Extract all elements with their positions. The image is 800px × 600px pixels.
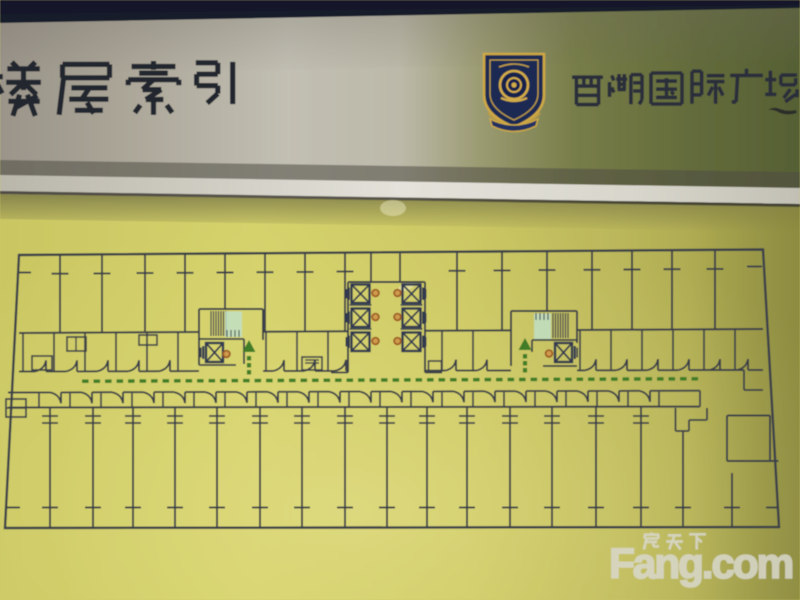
- svg-text:Fang.com: Fang.com: [609, 541, 793, 588]
